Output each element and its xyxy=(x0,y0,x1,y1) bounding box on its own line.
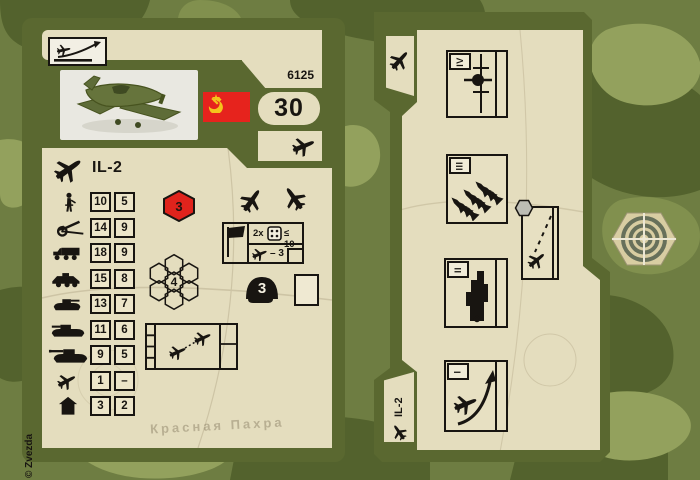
stat-row-aircraft: 1 – xyxy=(48,371,135,391)
unit-photo xyxy=(60,70,198,140)
stat-row-truck: 18 9 xyxy=(48,243,135,263)
dogfight-modifier: – 3 xyxy=(270,248,284,259)
stat-v1: 9 xyxy=(90,345,111,365)
stat-v2: 7 xyxy=(114,294,135,314)
climb-rate-icon xyxy=(52,40,104,63)
stat-v1: 1 xyxy=(90,371,111,391)
tab-aircraft-icon xyxy=(386,36,414,88)
stat-v2: 9 xyxy=(114,243,135,263)
hammer-sickle-icon xyxy=(205,93,227,113)
stat-row-infantry: 10 5 xyxy=(48,192,135,212)
flight-path-icon xyxy=(448,52,505,115)
left-card: 6125 xyxy=(22,18,345,462)
tab-plane-icon xyxy=(389,422,409,442)
stat-row-heavy-tank: 9 5 xyxy=(48,345,135,365)
climb-ability-box xyxy=(48,37,107,66)
helmet-marker: 3 xyxy=(240,270,284,310)
stat-v1: 11 xyxy=(90,320,111,340)
soviet-flag xyxy=(203,92,250,122)
order-box-flight: IV xyxy=(446,50,508,118)
light-tank-icon xyxy=(48,293,90,315)
order-box-rockets: III xyxy=(446,154,508,224)
unit-name: IL-2 xyxy=(92,159,122,177)
dice-limit: ≤ 10 xyxy=(284,228,302,250)
movement-value: 4 xyxy=(165,272,183,292)
aircraft-class-icon xyxy=(258,131,322,161)
pursuit-box xyxy=(145,323,238,370)
copyright: © Zvezda xyxy=(24,406,35,478)
product-code: 6125 xyxy=(287,68,314,82)
truck-icon xyxy=(48,242,90,264)
armored-car-icon xyxy=(48,268,90,290)
heavy-tank-icon xyxy=(48,344,90,366)
stat-v2: – xyxy=(114,371,135,391)
ground-vehicle-icon xyxy=(446,260,505,325)
initiative-hex: 3 xyxy=(161,190,197,222)
stat-v2: 2 xyxy=(114,396,135,416)
marker-slot xyxy=(294,274,319,306)
artillery-icon xyxy=(48,217,90,239)
order-box-takeoff: I xyxy=(444,360,508,432)
initiative-value: 3 xyxy=(161,190,197,222)
stat-v2: 9 xyxy=(114,218,135,238)
building-icon xyxy=(48,395,90,417)
aircraft-tab xyxy=(386,36,414,96)
point-value: 30 xyxy=(274,94,304,123)
stat-row-artillery: 14 9 xyxy=(48,218,135,238)
code-tab: 6125 xyxy=(242,30,322,88)
medium-tank-icon xyxy=(48,319,90,341)
stat-row-building: 3 2 xyxy=(48,396,135,416)
strike-box xyxy=(521,206,559,280)
dogfight-empty-cell xyxy=(287,248,302,262)
order-box-vehicle: II xyxy=(444,258,508,328)
penalty-plane-icon xyxy=(251,245,269,262)
stats-table: 10 5 14 9 18 9 15 8 xyxy=(48,192,135,422)
stat-row-medium-tank: 11 6 xyxy=(48,320,135,340)
takeoff-icon xyxy=(446,362,505,429)
movement-hexes: 4 xyxy=(145,250,203,314)
hex-marker-icon xyxy=(514,199,534,217)
unit-name-aircraft-icon xyxy=(50,150,88,186)
stat-v1: 13 xyxy=(90,294,111,314)
rocket-salvo-icon xyxy=(448,156,505,221)
aircraft-row-icon xyxy=(48,370,90,392)
unit-class-box xyxy=(258,131,322,161)
stat-v2: 8 xyxy=(114,269,135,289)
stat-row-light-tank: 13 7 xyxy=(48,294,135,314)
scene: 6125 xyxy=(0,0,700,480)
infantry-icon xyxy=(48,191,90,213)
dice-multiplier: 2x xyxy=(253,228,264,239)
target-token xyxy=(610,212,678,266)
stat-v2: 6 xyxy=(114,320,135,340)
stat-v1: 14 xyxy=(90,218,111,238)
points-box: 30 xyxy=(258,92,320,125)
die-icon xyxy=(266,225,283,242)
stats-panel: Красная Пахра IL-2 10 5 14 9 xyxy=(42,148,332,448)
tab-unit-name: IL-2 xyxy=(393,397,405,417)
stat-v1: 15 xyxy=(90,269,111,289)
stat-v2: 5 xyxy=(114,345,135,365)
helmet-value: 3 xyxy=(240,276,284,300)
stat-v1: 18 xyxy=(90,243,111,263)
stat-v1: 3 xyxy=(90,396,111,416)
dogfight-box: 2x ≤ 10 – 3 xyxy=(222,222,304,264)
flag-icon xyxy=(224,224,247,260)
unit-name-tab-content: IL-2 xyxy=(384,372,414,442)
il2-model-image xyxy=(60,70,198,140)
dogfight-planes-icon xyxy=(226,182,322,216)
unit-name-tab: IL-2 xyxy=(384,372,414,442)
stat-v1: 10 xyxy=(90,192,111,212)
flag-cell xyxy=(224,224,249,262)
stat-v2: 5 xyxy=(114,192,135,212)
diving-attack-icon xyxy=(525,210,555,276)
stat-row-armored-car: 15 8 xyxy=(48,269,135,289)
